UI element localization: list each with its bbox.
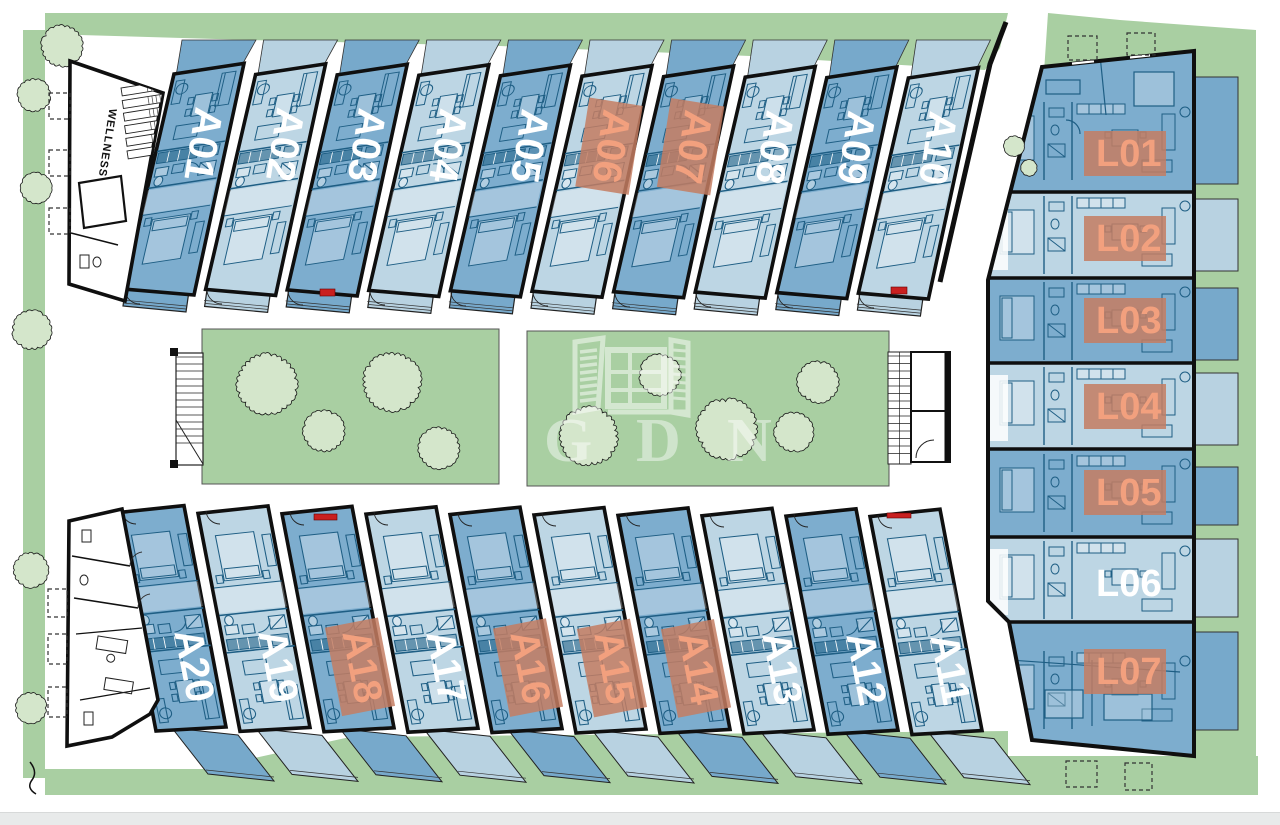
svg-text:L03: L03 — [1096, 300, 1161, 342]
svg-text:D: D — [636, 407, 681, 475]
svg-text:L02: L02 — [1096, 218, 1161, 260]
svg-text:L07: L07 — [1096, 651, 1161, 693]
svg-text:L01: L01 — [1096, 133, 1161, 175]
svg-text:G: G — [544, 407, 592, 475]
svg-text:L05: L05 — [1096, 472, 1161, 514]
svg-text:L06: L06 — [1096, 563, 1161, 605]
svg-text:N: N — [727, 407, 772, 475]
svg-text:L04: L04 — [1096, 386, 1161, 428]
